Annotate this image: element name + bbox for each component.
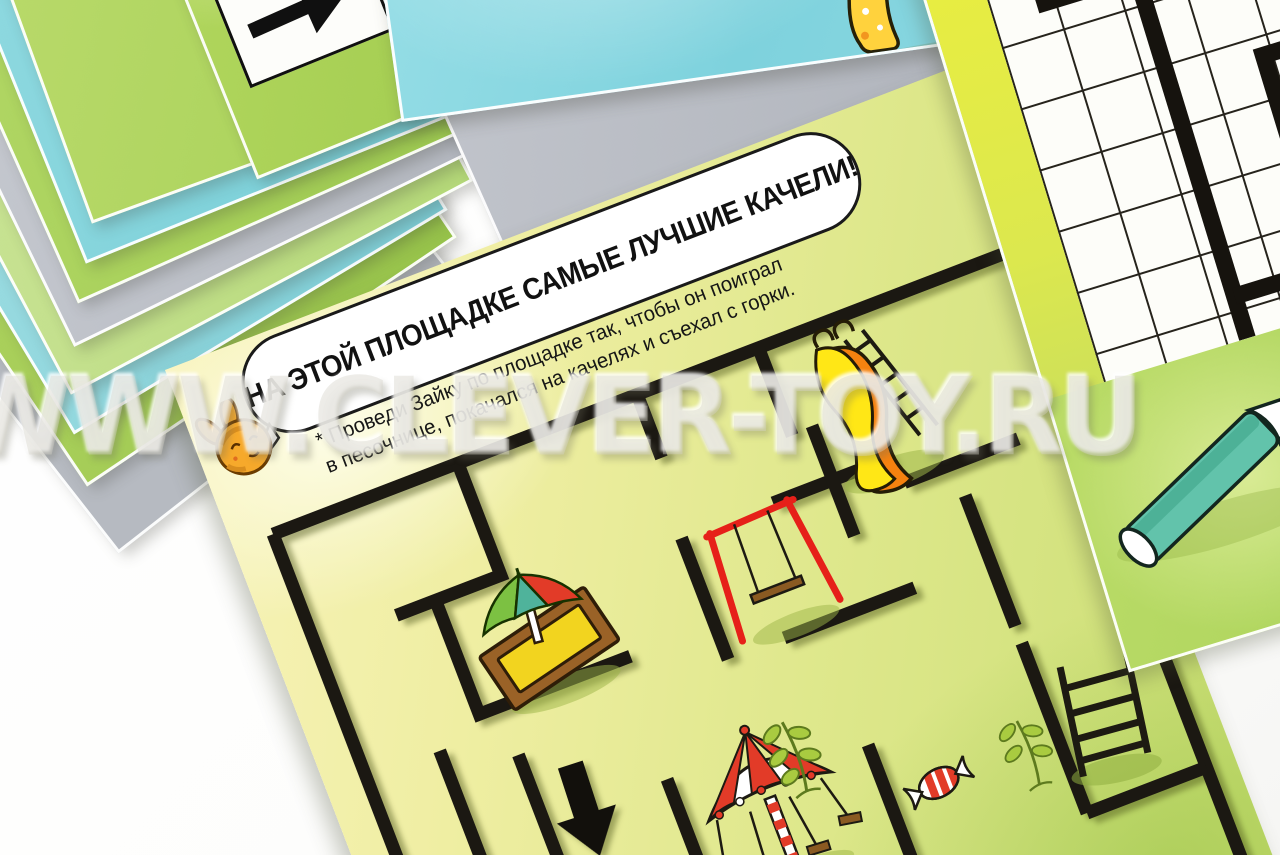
carousel-illustration xyxy=(670,698,878,855)
candy-illustration xyxy=(900,750,977,815)
sequence-cell xyxy=(213,0,394,84)
right-arrow-icon xyxy=(228,0,376,66)
photo-of-activity-cards: НА ЭТОЙ ПЛОЩАДКЕ САМЫЕ ЛУЧШИЕ КАЧЕЛИ! * … xyxy=(0,0,1280,855)
